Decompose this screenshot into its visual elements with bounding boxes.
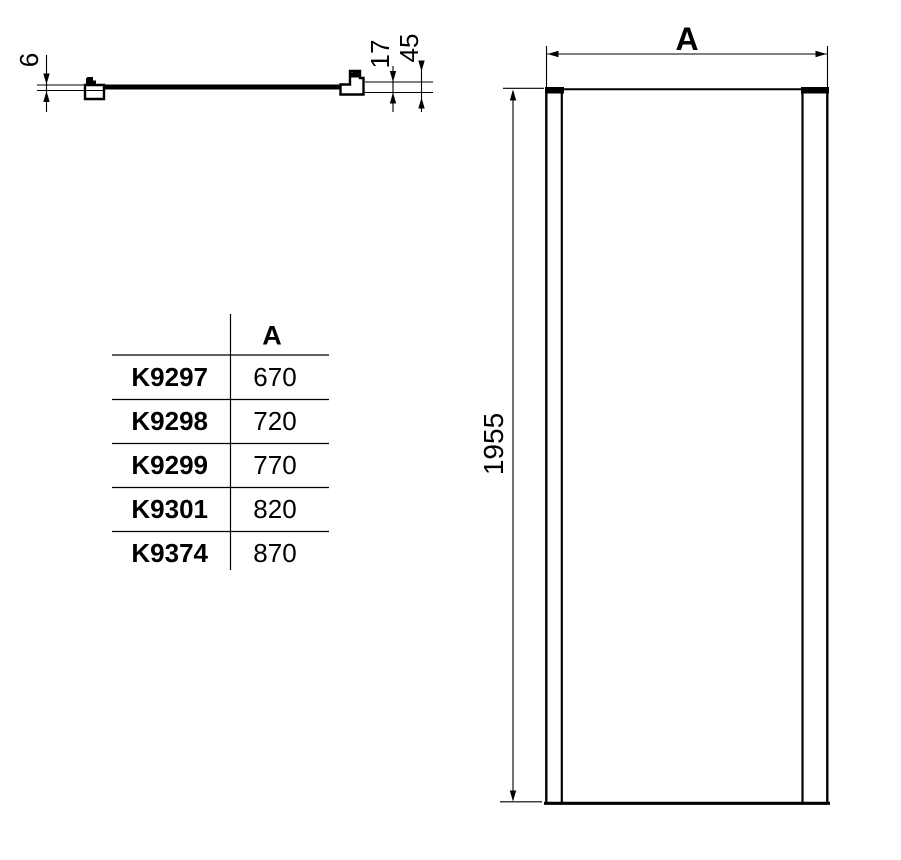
table-cell-width: 870 <box>230 539 320 567</box>
section-left-profile-tab <box>86 77 96 85</box>
table-cell-code: K9297 <box>98 363 208 391</box>
table-header-a: A <box>262 323 282 350</box>
table-cell-code: K9298 <box>98 407 208 435</box>
dim-label-profile-inner: 17 <box>367 40 393 69</box>
front-view <box>500 46 830 804</box>
panel-left-top-cap <box>545 87 564 94</box>
table-cell-width: 770 <box>230 451 320 479</box>
arrow-a-right <box>816 51 827 57</box>
panel-right-top-cap <box>801 87 829 94</box>
arrow-17-bottom <box>390 93 396 104</box>
table-cell-code: K9299 <box>98 451 208 479</box>
table-cell-width: 720 <box>230 407 320 435</box>
dim-label-width-a: A <box>675 23 698 55</box>
section-left-profile <box>85 85 104 99</box>
technical-drawing-page: 6 17 45 A 1955 A K9297 670 K9298 720 K92… <box>0 0 901 860</box>
table-cell-width: 670 <box>230 363 320 391</box>
dim-label-profile-outer: 45 <box>396 34 422 63</box>
arrow-6-bottom <box>43 91 49 102</box>
dim-label-glass-thickness: 6 <box>16 53 42 67</box>
arrow-1955-top <box>510 90 516 101</box>
arrow-17-top <box>390 71 396 82</box>
arrow-1955-bottom <box>510 791 516 802</box>
table-grid <box>112 314 329 570</box>
table-cell-width: 820 <box>230 495 320 523</box>
table-cell-code: K9374 <box>98 539 208 567</box>
dim-label-height-1955: 1955 <box>480 413 508 475</box>
table-cell-code: K9301 <box>98 495 208 523</box>
arrow-a-left <box>548 51 559 57</box>
arrow-45-bottom <box>418 98 424 109</box>
arrow-6-top <box>43 74 49 85</box>
